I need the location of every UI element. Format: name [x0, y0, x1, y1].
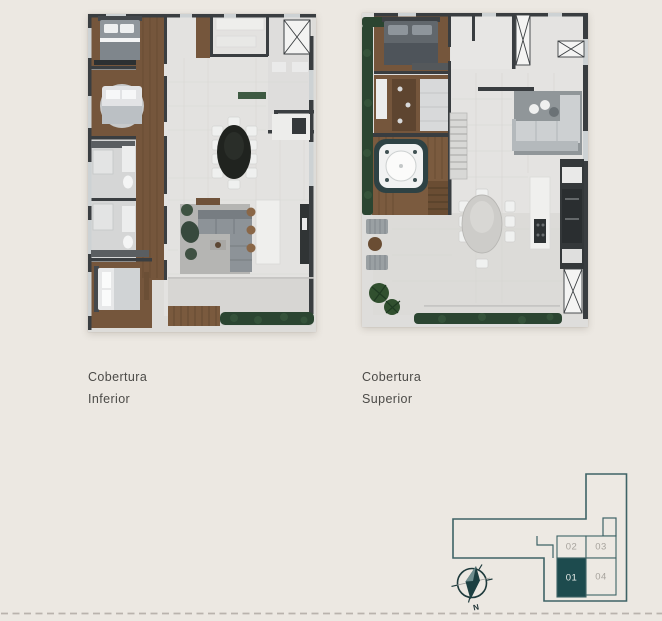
unit-number-04: 04 — [595, 572, 607, 583]
compass-icon: N — [452, 565, 493, 613]
bed-round-suite — [100, 84, 144, 128]
label-line-1: Cobertura — [362, 366, 542, 388]
label-cobertura-inferior: Cobertura Inferior — [88, 366, 268, 410]
label-line-2: Superior — [362, 388, 542, 410]
stairs — [450, 113, 467, 179]
wardrobe-icon — [284, 20, 310, 54]
label-line-2: Inferior — [88, 388, 268, 410]
kitchen-cabinets — [560, 159, 584, 269]
unit-number-03: 03 — [595, 542, 607, 553]
bed-master — [94, 16, 142, 65]
unit-number-01: 01 — [566, 573, 578, 584]
label-line-1: Cobertura — [88, 366, 268, 388]
jacuzzi — [374, 139, 428, 193]
unit-cells: 02 03 01 04 — [557, 536, 616, 597]
hedge — [220, 312, 314, 325]
deck-steps — [428, 181, 450, 215]
footer-dashed-divider — [0, 609, 662, 617]
balcony-railing — [168, 277, 314, 279]
terrace-railing — [424, 305, 560, 307]
living-room — [178, 198, 252, 274]
unit-number-02: 02 — [566, 542, 578, 553]
floorplan-cobertura-inferior — [88, 14, 316, 332]
kitchen-island — [530, 177, 550, 249]
floorplan-lower-drawing — [88, 14, 316, 332]
floorplan-upper-drawing — [362, 13, 588, 327]
dining-table — [212, 117, 257, 189]
label-cobertura-superior: Cobertura Superior — [362, 366, 542, 410]
terrace-deck — [168, 306, 220, 326]
floorplan-cobertura-superior — [362, 13, 588, 327]
site-key-plan: 02 03 01 04 N — [440, 458, 662, 614]
sofa-lounge — [512, 91, 582, 155]
footprint-notch — [603, 518, 616, 536]
